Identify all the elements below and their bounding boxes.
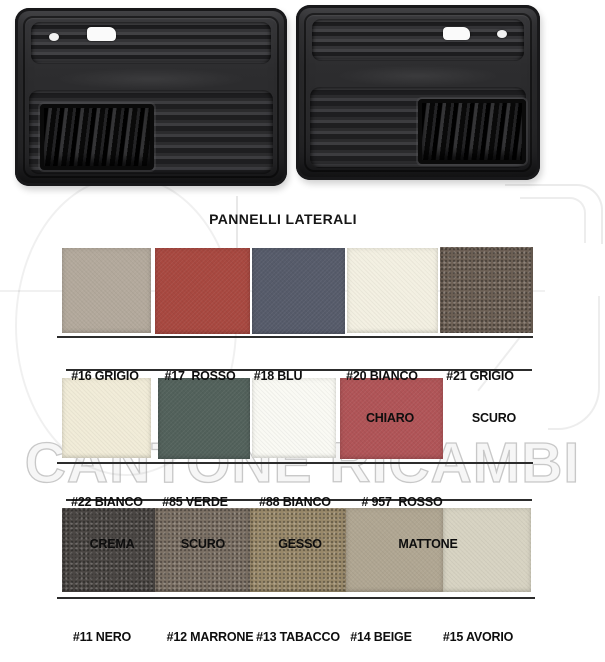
door-panel-left-sheen <box>55 68 247 90</box>
door-panel-right-top-ribs <box>312 19 524 61</box>
swatch-label-16-line1: #16 GRIGIO <box>55 369 155 383</box>
door-panel-right-map-pocket <box>418 99 526 164</box>
swatch-label-11: #11 NERO <box>57 602 147 662</box>
swatch-label-957: # 957 ROSSO MATTONE <box>342 467 462 579</box>
divider-row3 <box>57 597 535 599</box>
swatch-18-blu <box>252 248 345 334</box>
swatch-label-21-line2: SCURO <box>436 411 524 425</box>
swatch-label-13-line1: #13 TABACCO <box>248 630 348 644</box>
chart-title: PANNELLI LATERALI <box>83 211 483 227</box>
swatch-label-22-line2: CREMA <box>55 537 159 551</box>
swatch-label-88-line2: GESSO <box>246 537 344 551</box>
swatch-label-15: #15 AVORIO <box>430 602 526 662</box>
swatch-label-13: #13 TABACCO <box>248 602 348 662</box>
divider-row2-top <box>57 462 533 464</box>
swatch-21-grigio-scuro <box>440 247 533 333</box>
swatch-label-85: #85 VERDE SCURO <box>146 467 244 579</box>
swatch-label-11-line1: #11 NERO <box>57 630 147 644</box>
divider-row1-top <box>57 336 533 338</box>
swatch-label-22: #22 BIANCO CREMA <box>55 467 159 579</box>
swatch-label-88-line1: #88 BIANCO <box>246 495 344 509</box>
door-panel-left <box>15 8 287 186</box>
swatch-17-rosso <box>155 248 250 334</box>
swatch-label-957-line2: MATTONE <box>342 537 462 551</box>
swatch-label-85-line1: #85 VERDE <box>146 495 244 509</box>
door-panel-left-top-ribs <box>31 22 271 64</box>
watermark-logo-corner-inner <box>520 197 586 243</box>
watermark-logo-corner-outer <box>505 184 603 244</box>
door-panel-right <box>296 5 540 180</box>
swatch-label-21-line1: #21 GRIGIO <box>436 369 524 383</box>
swatch-label-14-line1: #14 BEIGE <box>336 630 426 644</box>
door-panel-right-hole <box>497 30 507 38</box>
swatch-label-957-line1: # 957 ROSSO <box>342 495 462 509</box>
swatch-label-85-line2: SCURO <box>146 537 244 551</box>
swatch-label-15-line1: #15 AVORIO <box>430 630 526 644</box>
swatch-16-grigio <box>62 248 151 333</box>
door-panel-left-map-pocket <box>40 104 154 170</box>
swatch-label-88: #88 BIANCO GESSO <box>246 467 344 579</box>
door-panel-right-sheen <box>336 65 500 87</box>
swatch-20-bianco-chiaro <box>347 248 438 333</box>
swatch-label-22-line1: #22 BIANCO <box>55 495 159 509</box>
watermark-logo-bracket <box>548 296 600 430</box>
door-panel-left-hole <box>49 33 59 41</box>
catalog-sheet: CANTONE RICAMBI PANNELLI LATERALI #16 GR… <box>0 0 605 662</box>
swatch-label-21: #21 GRIGIO SCURO <box>436 341 524 453</box>
swatch-label-20-line2: CHIARO <box>338 411 426 425</box>
swatch-label-20: #20 BIANCO CHIARO <box>338 341 426 453</box>
door-panel-right-handle-cutout <box>443 27 470 40</box>
swatch-label-14: #14 BEIGE <box>336 602 426 662</box>
swatch-label-18: #18 BLU <box>236 341 320 411</box>
swatch-label-20-line1: #20 BIANCO <box>338 369 426 383</box>
swatch-label-16: #16 GRIGIO <box>55 341 155 411</box>
swatch-label-18-line1: #18 BLU <box>236 369 320 383</box>
door-panel-left-handle-cutout <box>87 27 116 41</box>
